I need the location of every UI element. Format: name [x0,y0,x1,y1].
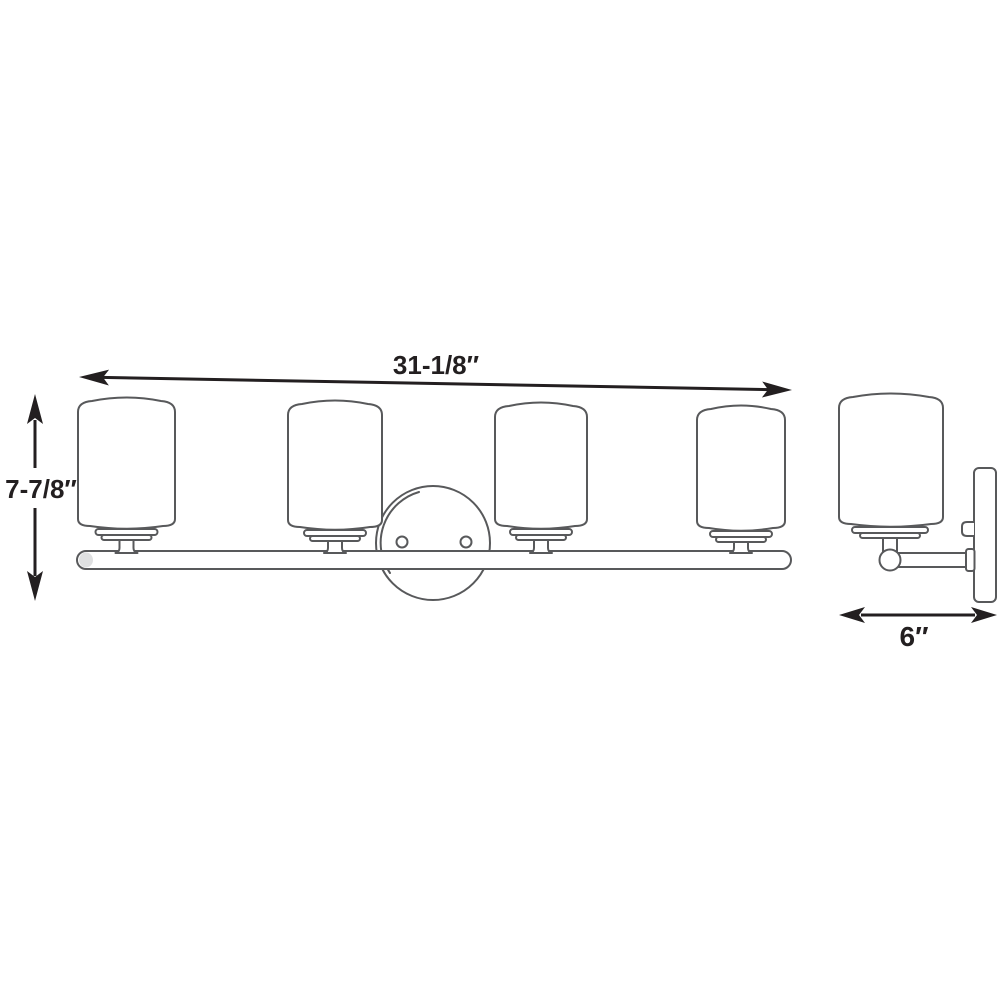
canopy-circle [376,486,490,600]
front-view [77,398,791,601]
stem-4 [730,542,752,553]
stem-3 [530,540,552,553]
height-arrowhead-top-icon [27,394,43,424]
light-1 [78,398,175,554]
fixture-dimension-diagram: 31-1/8″ 7-7/8″ [0,0,1000,1000]
side-shade-holder-lower [860,533,920,538]
height-dimension: 7-7/8″ [5,394,77,601]
light-3 [495,403,587,554]
width-dimension-label: 31-1/8″ [393,350,479,380]
side-arm-wall-flange [966,549,975,571]
canopy-screw-hole-left [397,537,408,548]
side-arm [897,553,968,567]
side-view [839,394,996,603]
depth-dimension-label: 6″ [900,621,929,652]
light-2 [288,401,382,554]
bar-left-cap-shading [79,553,93,568]
light-4 [697,406,785,554]
glass-shade-4 [697,406,785,531]
mounting-bar [77,551,791,569]
width-dimension: 31-1/8″ [79,350,792,398]
side-ball-joint [880,550,901,571]
depth-dimension: 6″ [839,607,997,652]
side-mounting-knob [962,522,974,536]
canopy-screw-hole-right [461,537,472,548]
glass-shade-2 [288,401,382,530]
side-wall-plate [974,468,996,602]
bar-body [77,551,791,569]
stem-2 [324,541,346,553]
height-dimension-label: 7-7/8″ [5,474,77,504]
canopy [376,486,490,600]
diagram-canvas: 31-1/8″ 7-7/8″ [0,0,1000,1000]
stem-1 [116,540,138,553]
glass-shade-3 [495,403,587,529]
glass-shade-1 [78,398,175,529]
side-glass-shade [839,394,943,527]
